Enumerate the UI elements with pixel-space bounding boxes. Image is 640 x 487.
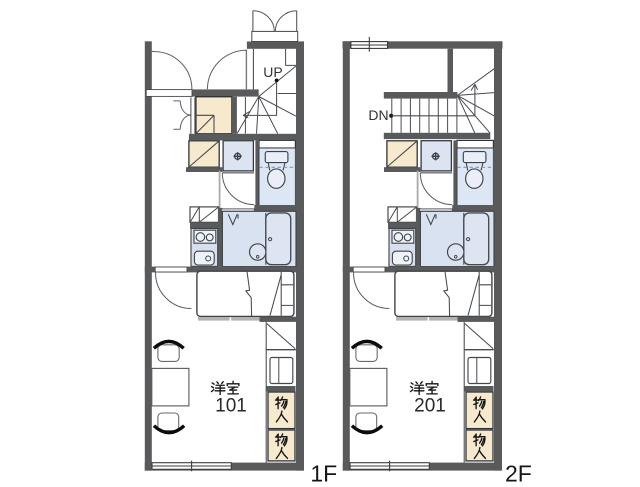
svg-text:201: 201 [414, 395, 446, 416]
svg-text:2F: 2F [505, 461, 532, 487]
svg-text:1F: 1F [310, 461, 337, 487]
svg-text:101: 101 [215, 395, 247, 416]
svg-text:DN: DN [368, 107, 388, 123]
svg-text:UP: UP [263, 64, 282, 80]
